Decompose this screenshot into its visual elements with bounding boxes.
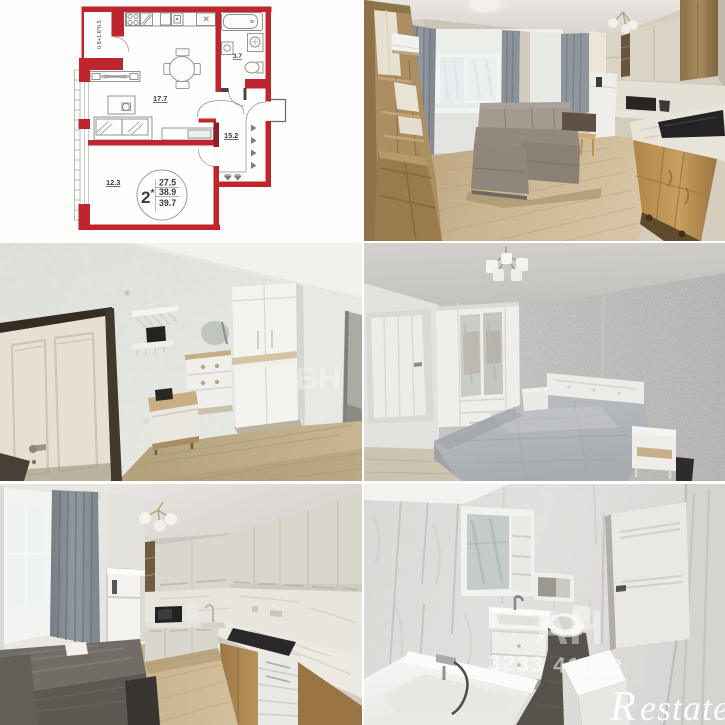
- svg-text:0.8+1.6*0.5: 0.8+1.6*0.5: [97, 20, 103, 49]
- svg-text:39.7: 39.7: [159, 198, 176, 208]
- svg-text:БН: БН: [296, 361, 341, 396]
- svg-text:АН: АН: [534, 602, 603, 655]
- svg-text:15.2: 15.2: [224, 131, 238, 140]
- svg-text:38.9: 38.9: [159, 187, 176, 197]
- svg-text:2: 2: [141, 188, 150, 207]
- svg-text:R: R: [609, 684, 636, 725]
- svg-text:17.7: 17.7: [153, 94, 167, 103]
- svg-text:12.3: 12.3: [106, 178, 120, 187]
- svg-text:3.7: 3.7: [233, 53, 242, 60]
- svg-text:*: *: [151, 188, 155, 199]
- svg-text:estate: estate: [640, 688, 725, 725]
